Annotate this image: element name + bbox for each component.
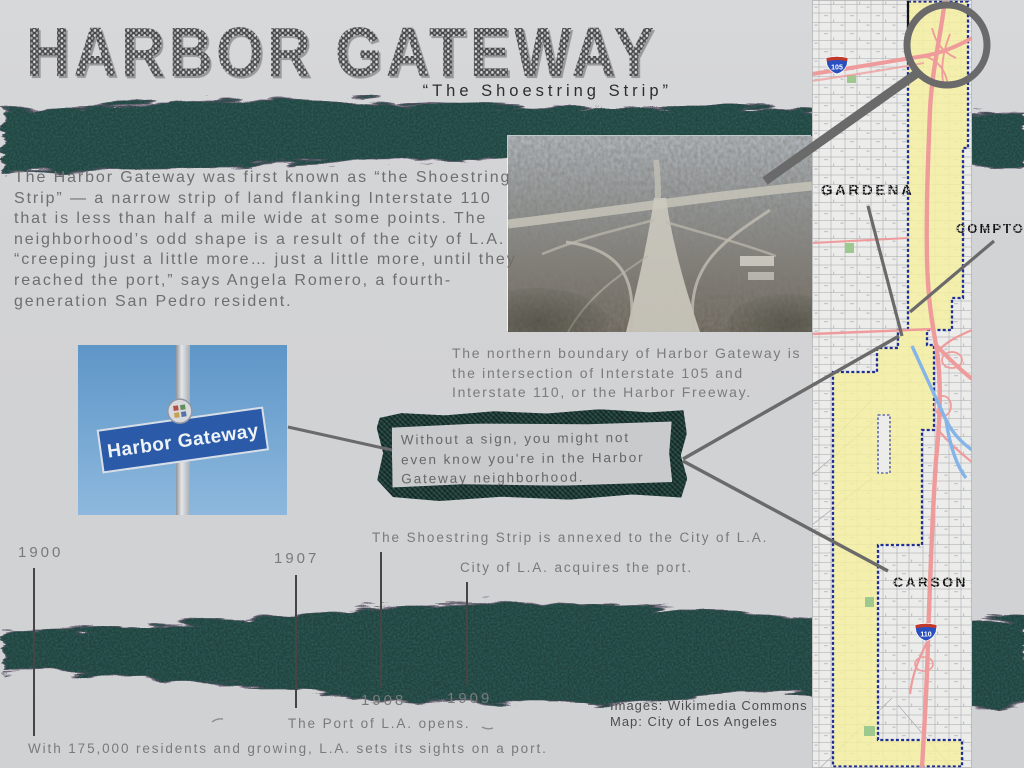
timeline-tick-1907	[295, 575, 297, 708]
poster-subtitle: “The Shoestring Strip”	[378, 82, 672, 101]
timeline-year-1900: 1900	[18, 544, 63, 561]
credits: Images: Wikimedia Commons Map: City of L…	[610, 698, 808, 730]
timeline-note-residents: With 175,000 residents and growing, L.A.…	[28, 741, 548, 756]
timeline-tick-1900	[33, 568, 35, 736]
map-label-compton: COMPTON	[956, 221, 1024, 236]
timeline-note-annexed: The Shoestring Strip is annexed to the C…	[372, 530, 768, 545]
credits-map: Map: City of Los Angeles	[610, 714, 808, 730]
sign-caption-text: Without a sign, you might not even know …	[392, 422, 673, 488]
timeline-year-1908: 1908	[361, 692, 406, 709]
aerial-interchange-photo	[508, 136, 812, 332]
sign-caption-line2: even know you're in the Harbor	[401, 447, 672, 469]
boundary-note-line3: Interstate 110, or the Harbor Freeway.	[452, 383, 801, 403]
boundary-note-line1: The northern boundary of Harbor Gateway …	[452, 344, 801, 364]
street-sign-photo: Harbor Gateway	[78, 345, 287, 515]
poster: HARBOR GATEWAY “The Shoestring Strip” Th…	[0, 0, 1024, 768]
boundary-cutout	[878, 415, 890, 473]
neighborhood-map: 105 110	[812, 0, 972, 768]
timeline-tick-1909	[466, 582, 468, 685]
timeline-year-1907: 1907	[274, 550, 319, 567]
timeline-year-1909: 1909	[447, 690, 492, 707]
sign-caption-line3: Gateway neighborhood.	[401, 467, 672, 489]
map-label-carson: CARSON	[893, 574, 968, 590]
timeline-tick-1908	[380, 552, 382, 688]
poster-title: HARBOR GATEWAY	[26, 12, 658, 92]
boundary-note-line2: the intersection of Interstate 105 and	[452, 364, 801, 384]
map-label-gardena: GARDENA	[821, 182, 914, 199]
i105-shield-number: 105	[831, 65, 843, 72]
intro-paragraph: The Harbor Gateway was first known as “t…	[14, 168, 520, 312]
i110-shield-number: 110	[920, 632, 931, 639]
timeline-note-acquires-port: City of L.A. acquires the port.	[460, 560, 693, 575]
credits-images: Images: Wikimedia Commons	[610, 698, 808, 714]
boundary-note: The northern boundary of Harbor Gateway …	[452, 344, 801, 403]
sign-caption-box: Without a sign, you might not even know …	[377, 408, 688, 501]
timeline-note-port-opens: The Port of L.A. opens.	[288, 716, 471, 731]
